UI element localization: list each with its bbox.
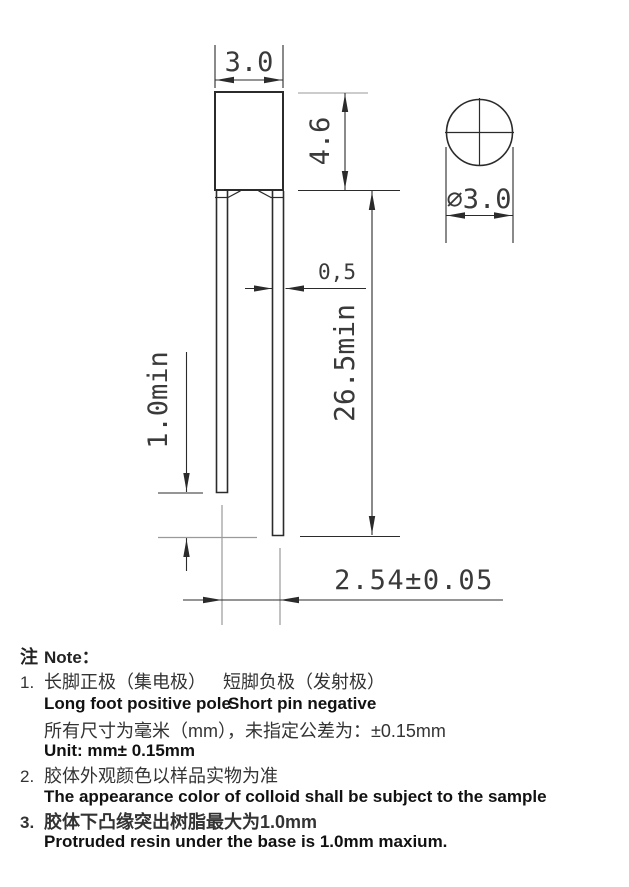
note-1-zh-unit: 所有尺寸为毫米（mm），未指定公差为：±0.15mm bbox=[44, 721, 446, 741]
note-3-line-zh: 3.胶体下凸缘突出树脂最大为1.0mm bbox=[20, 808, 317, 834]
note-1-number: 1. bbox=[20, 673, 44, 693]
note-1-zh-short-pin: 短脚负极（发射极） bbox=[223, 672, 385, 692]
note-1-line-unit-en: Unit: mm± 0.15mm bbox=[20, 741, 195, 761]
note-1-line-en: Long foot positive poleShort pin negativ… bbox=[20, 694, 376, 714]
notes-header: 注Note： bbox=[20, 643, 99, 669]
note-1-en-unit: Unit: mm± 0.15mm bbox=[44, 741, 195, 760]
note-3-line-en: Protruded resin under the base is 1.0mm … bbox=[20, 832, 447, 852]
note-1-en-short-pin: Short pin negative bbox=[228, 694, 376, 713]
note-1-zh-long-foot: 长脚正极（集电极） bbox=[44, 668, 223, 694]
note-2-en: The appearance color of colloid shall be… bbox=[44, 787, 547, 806]
note-3-number: 3. bbox=[20, 813, 44, 833]
note-2-line-en: The appearance color of colloid shall be… bbox=[20, 787, 547, 807]
notes-header-en: Note： bbox=[44, 648, 99, 667]
note-3-en: Protruded resin under the base is 1.0mm … bbox=[44, 832, 447, 851]
notes-header-zh: 注 bbox=[20, 647, 38, 667]
note-2-number: 2. bbox=[20, 767, 44, 787]
note-2-line-zh: 2.胶体外观颜色以样品实物为准 bbox=[20, 762, 278, 788]
note-2-zh: 胶体外观颜色以样品实物为准 bbox=[44, 766, 278, 786]
note-1-line-unit-zh: 所有尺寸为毫米（mm），未指定公差为：±0.15mm bbox=[20, 717, 446, 743]
note-3-zh: 胶体下凸缘突出树脂最大为1.0mm bbox=[44, 812, 317, 832]
note-1-en-long-foot: Long foot positive pole bbox=[44, 694, 228, 714]
notes-section: 注Note： 1.长脚正极（集电极）短脚负极（发射极） Long foot po… bbox=[0, 0, 629, 887]
note-1-line-zh: 1.长脚正极（集电极）短脚负极（发射极） bbox=[20, 668, 385, 694]
